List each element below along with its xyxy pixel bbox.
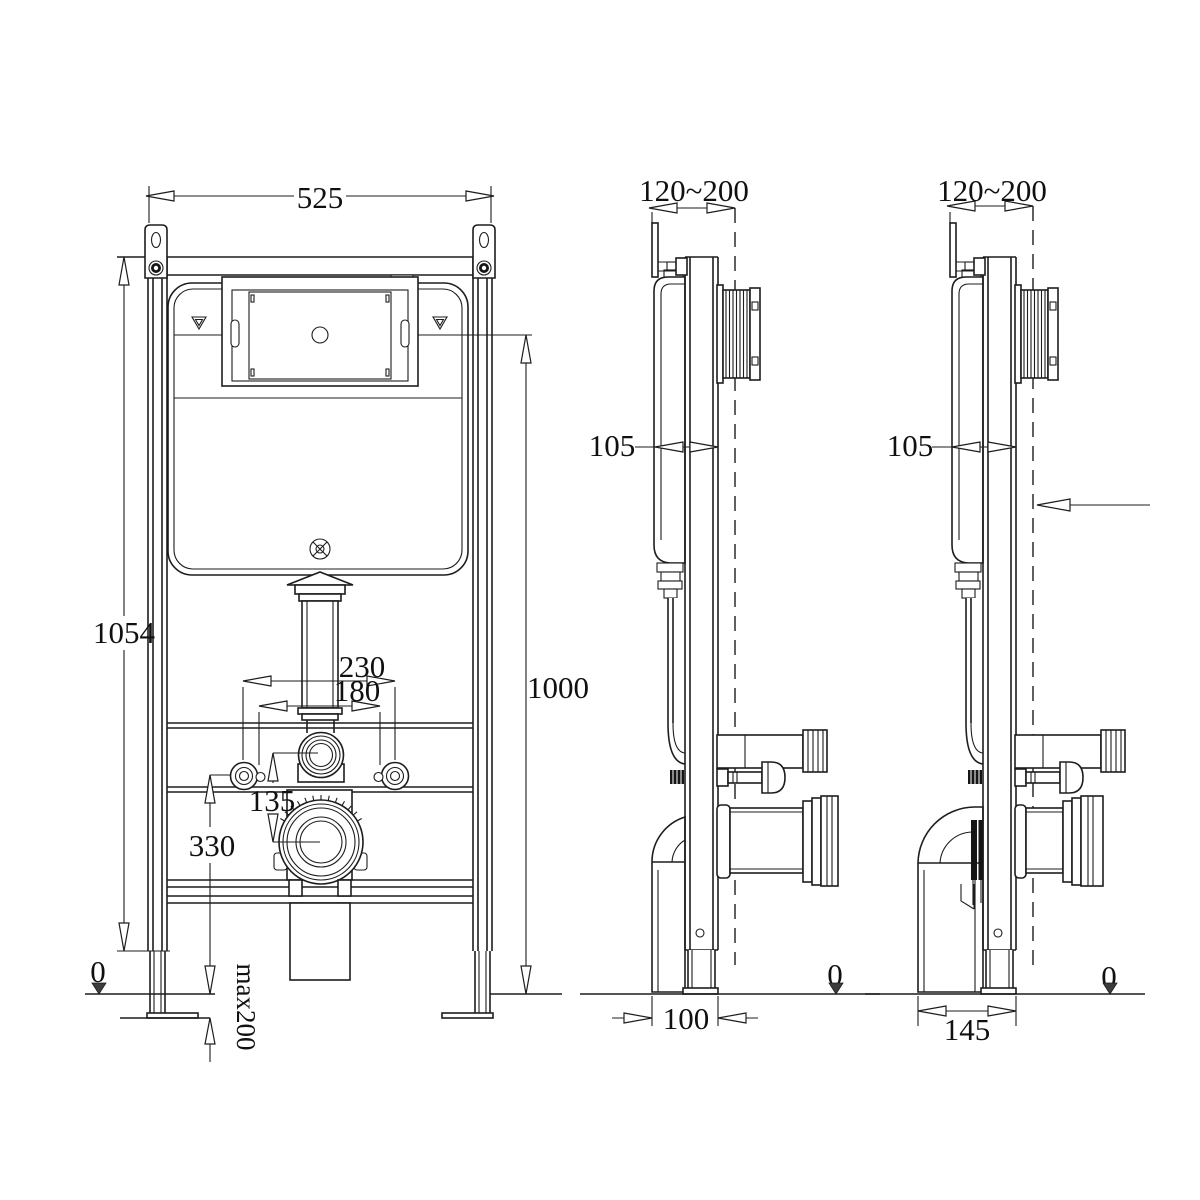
cistern-profile bbox=[654, 262, 685, 764]
anchor-stud bbox=[670, 770, 684, 784]
flush-connection bbox=[298, 733, 344, 783]
side-view-145: 120~200 105 145 0 bbox=[865, 173, 1150, 1047]
flush-elbow-outer bbox=[668, 723, 685, 764]
wall-surface-arrow bbox=[1037, 499, 1150, 511]
floor-datum-front: 0 bbox=[90, 954, 106, 994]
drain-downpipe bbox=[290, 903, 350, 980]
front-view: 525 1054 1000 230 bbox=[85, 180, 589, 1062]
soil-connector bbox=[717, 796, 838, 886]
anchor-stud bbox=[968, 770, 982, 784]
drawing-canvas: 525 1054 1000 230 bbox=[0, 0, 1200, 1200]
flush-sleeve bbox=[717, 285, 760, 383]
dim-drain-height: 330 bbox=[189, 775, 236, 994]
dim-drain-offset-label: 100 bbox=[663, 1001, 710, 1036]
dim-wall-range: 120~200 bbox=[937, 173, 1047, 224]
dim-depth-label: 105 bbox=[887, 428, 934, 463]
wall-bracket-right bbox=[473, 225, 495, 278]
frame-profile bbox=[983, 257, 1016, 950]
clip-slot-right bbox=[401, 320, 409, 347]
flush-plate-box bbox=[222, 277, 418, 386]
frame-profile bbox=[685, 257, 718, 950]
dim-install-height-label: 1000 bbox=[527, 670, 589, 705]
dim-drain-offset: 100 bbox=[612, 996, 758, 1036]
technical-drawing: 525 1054 1000 230 bbox=[0, 0, 1200, 1200]
cistern-profile bbox=[952, 262, 983, 764]
dim-depth-label: 105 bbox=[589, 428, 636, 463]
flush-elbow-outer bbox=[966, 723, 983, 764]
soil-elbow bbox=[652, 817, 685, 992]
dim-leg-extension-label: max200 bbox=[231, 964, 261, 1051]
dim-drain-offset-label: 145 bbox=[944, 1012, 991, 1047]
dim-drain-height-label: 330 bbox=[189, 828, 236, 863]
dim-wall-range-label: 120~200 bbox=[937, 173, 1047, 208]
soil-connector bbox=[1015, 796, 1103, 886]
cistern-screw bbox=[310, 539, 330, 559]
floor-datum-side100: 0 bbox=[827, 957, 843, 994]
dim-flush-drain-gap-label: 135 bbox=[249, 783, 296, 818]
flush-elbow-inner bbox=[971, 723, 983, 753]
flush-elbow-inner bbox=[673, 723, 685, 753]
dim-wall-range: 120~200 bbox=[639, 173, 749, 224]
side-view-100: 120~200 105 100 0 bbox=[580, 173, 880, 1036]
flush-sleeve bbox=[1015, 285, 1058, 383]
clip-slot-left bbox=[231, 320, 239, 347]
dim-hole-spacing-label: 180 bbox=[334, 673, 381, 708]
dim-drain-offset: 145 bbox=[918, 996, 1016, 1047]
dim-width: 525 bbox=[146, 180, 494, 223]
dim-wall-range-label: 120~200 bbox=[639, 173, 749, 208]
dim-frame-height: 1054 bbox=[93, 257, 170, 951]
dim-frame-height-label: 1054 bbox=[93, 615, 156, 650]
wall-bracket-left bbox=[145, 225, 167, 278]
fixing-bolt-right bbox=[374, 763, 409, 790]
floor-datum-side145: 0 bbox=[1101, 959, 1117, 994]
dim-width-label: 525 bbox=[297, 180, 344, 215]
